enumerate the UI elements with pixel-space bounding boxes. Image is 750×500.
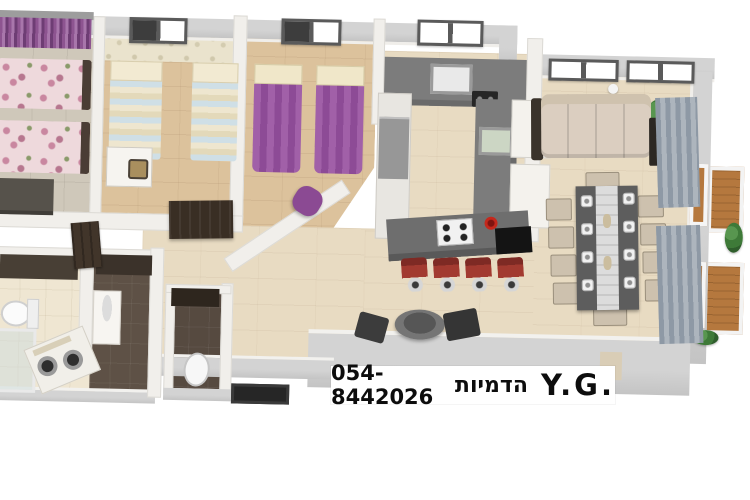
kitchen-island-group	[386, 202, 542, 303]
bathroom-dark-band	[96, 254, 152, 275]
bedroom3-window	[281, 18, 342, 45]
toiletroom-dark-band	[0, 254, 78, 280]
table-centerpiece-1	[603, 214, 611, 228]
island-black-end	[495, 226, 533, 254]
watermark-phone: 054-8442026	[331, 361, 442, 409]
table-runner	[596, 186, 620, 310]
wall-wc-right	[219, 283, 234, 395]
bar-stool-2	[433, 257, 461, 293]
dining-chair-left-2	[548, 226, 574, 248]
plant-deck-right	[724, 223, 743, 253]
wall-wc-bottom	[163, 388, 231, 402]
deck-upper	[707, 166, 744, 233]
bar-stool-4	[497, 257, 525, 293]
kitchen-fridge	[378, 117, 409, 180]
sofa-body	[541, 94, 651, 158]
plate	[625, 278, 635, 288]
dining-chair-left-3	[550, 254, 576, 276]
living-window-left	[548, 58, 618, 82]
table-centerpiece-2	[603, 256, 611, 270]
toilet-tank	[27, 299, 40, 329]
floorplan-screenshot: 054-8442026 הדמיות Y.G.	[0, 0, 750, 500]
island-gas-hob	[436, 218, 474, 246]
curtain-right-upper	[655, 97, 700, 208]
bedroom3-bed-right-pillow	[316, 65, 364, 86]
dining-chair-left-1	[546, 198, 572, 220]
bedroom1-dresser	[0, 178, 54, 215]
plate	[582, 196, 592, 206]
bedroom2-window	[129, 17, 188, 44]
bedroom3-bed-right-blanket	[314, 85, 364, 174]
floorplan-render	[0, 0, 750, 500]
dining-chair-left-4	[553, 282, 579, 304]
plate	[583, 280, 593, 290]
bedroom2-wardrobe	[169, 200, 233, 239]
curtain-right-lower	[656, 225, 703, 344]
bedroom2-bed-left-pillow	[110, 61, 162, 82]
plate	[582, 252, 592, 262]
bedroom2-bed-right-pillow	[192, 62, 238, 83]
watermark-initials: Y.G.	[541, 368, 615, 402]
plate	[582, 224, 592, 234]
bar-stool-1	[401, 257, 429, 293]
living-window-right	[626, 60, 694, 84]
deck-lower	[703, 262, 745, 335]
bedroom2-chair	[128, 159, 148, 179]
bathroom-vanity	[92, 290, 121, 345]
plate	[624, 194, 634, 204]
kitchen-prep-sink	[479, 127, 514, 156]
bedroom1-curtain	[0, 17, 92, 49]
bedroom1-bed-upper	[0, 58, 92, 110]
kitchen-window	[417, 19, 484, 46]
bathroom-door	[71, 221, 103, 269]
watermark-banner: 054-8442026 הדמיות Y.G.	[331, 366, 615, 404]
watermark-studio-text: הדמיות	[455, 373, 528, 398]
bedroom1-bed-lower	[0, 120, 90, 174]
entrance-mat	[231, 383, 289, 404]
plate	[624, 222, 634, 232]
bedroom2-bed-right-blanket	[190, 82, 238, 161]
bedroom3-bed-left-blanket	[252, 84, 302, 173]
hall-bottom-wall	[150, 353, 334, 379]
kitchen-sink	[430, 64, 473, 95]
bar-stool-3	[465, 257, 493, 293]
bedroom3-bed-left-pillow	[254, 64, 302, 85]
plate	[624, 250, 634, 260]
wc-dark-band	[171, 288, 219, 307]
